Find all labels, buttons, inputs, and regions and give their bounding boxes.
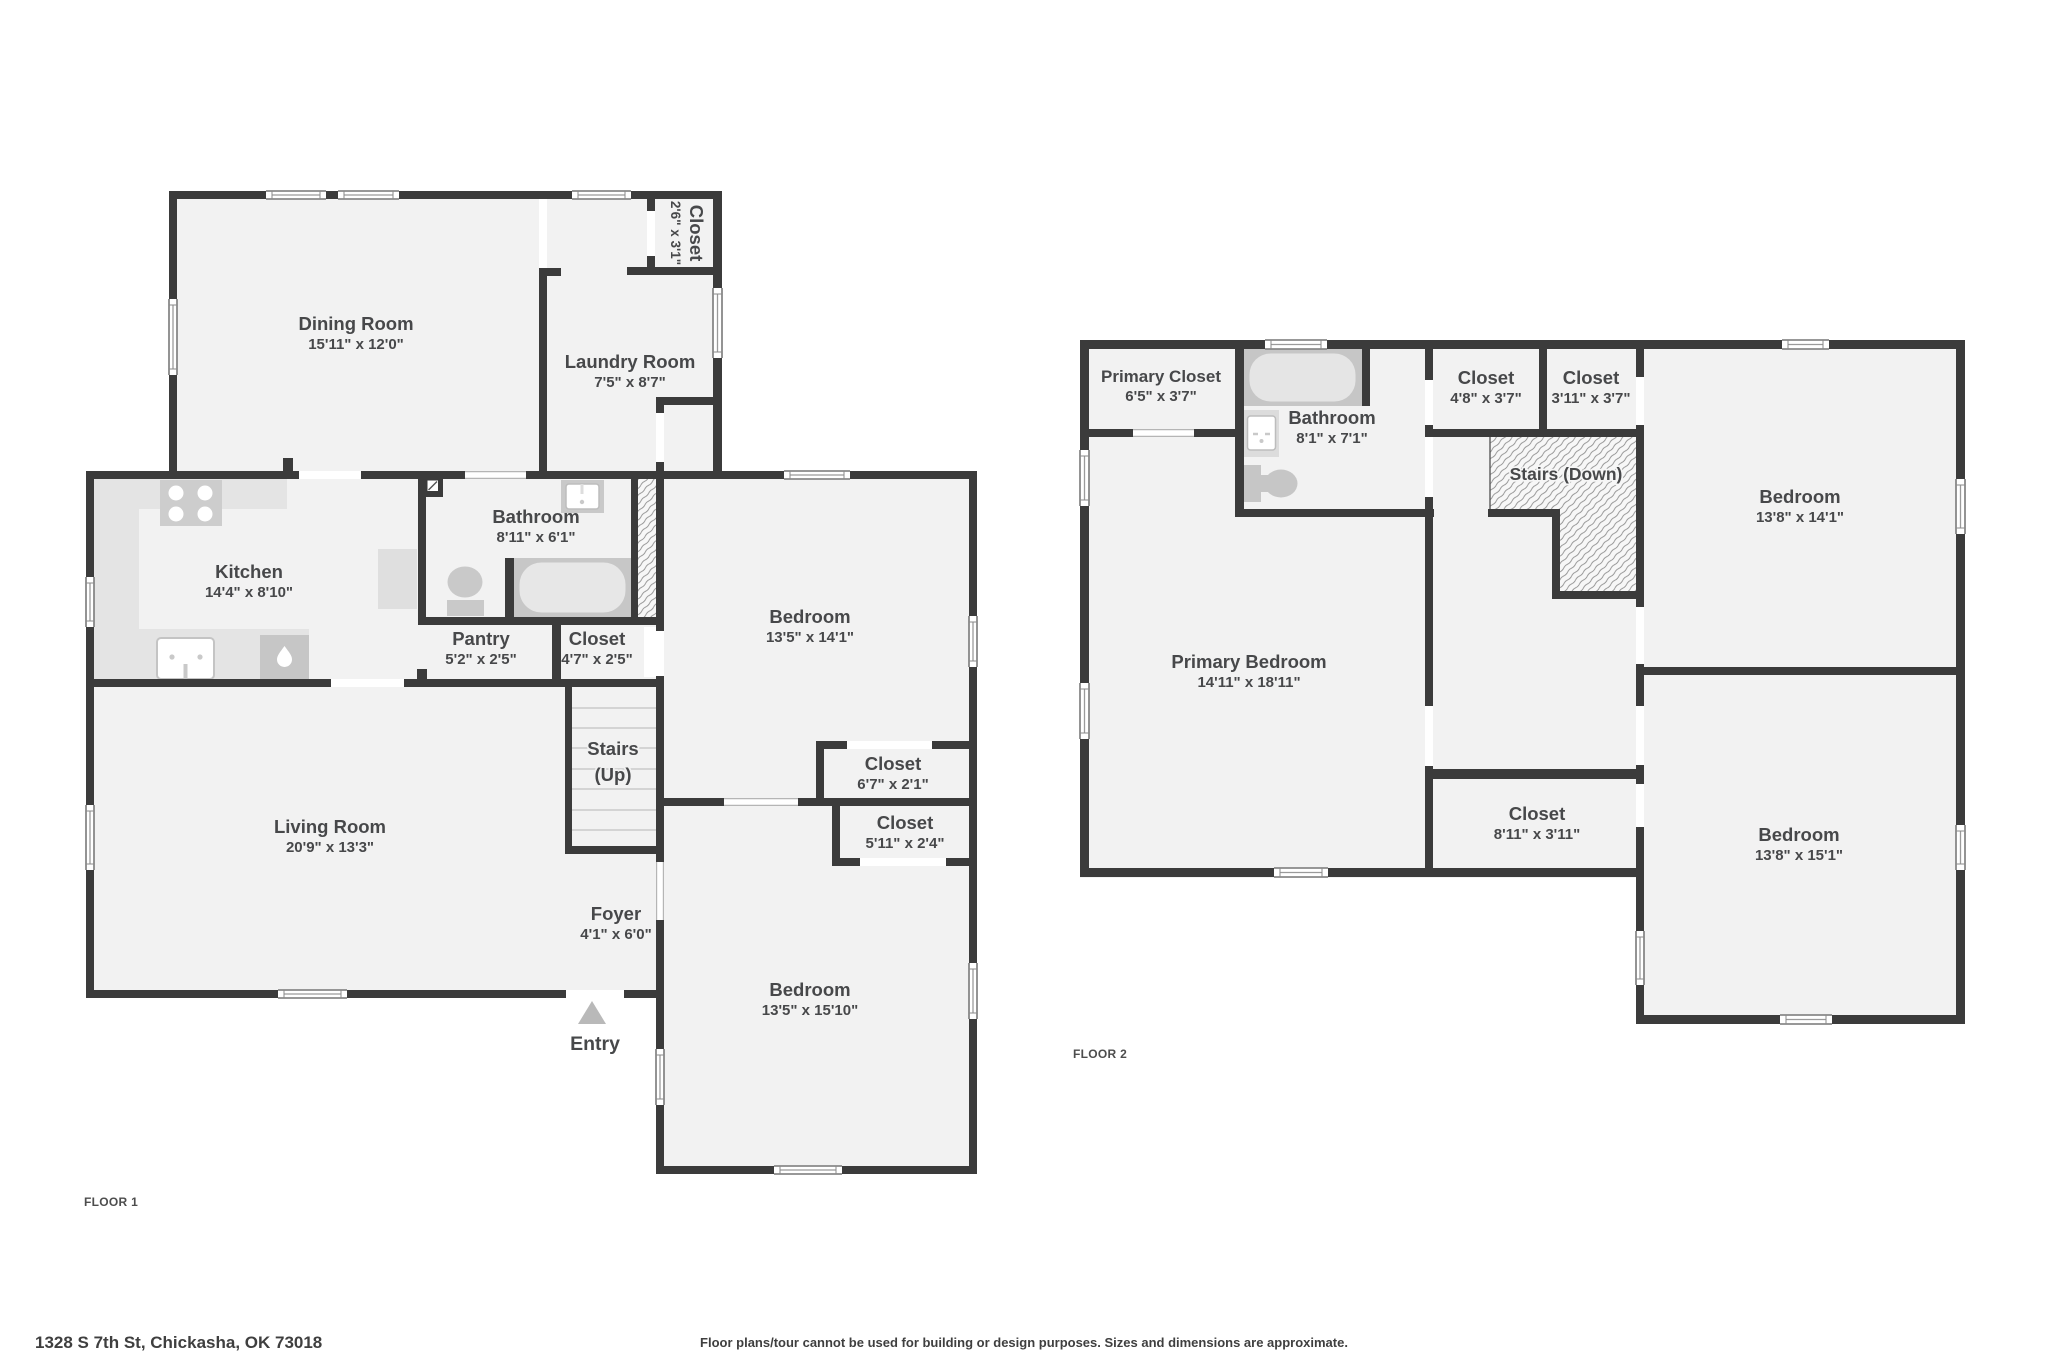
svg-text:1328 S 7th St, Chickasha, OK 7: 1328 S 7th St, Chickasha, OK 73018 [35, 1333, 322, 1352]
svg-text:14'11" x 18'11": 14'11" x 18'11" [1197, 674, 1300, 691]
svg-text:Stairs: Stairs [587, 738, 638, 759]
svg-text:15'11" x 12'0": 15'11" x 12'0" [308, 336, 404, 353]
svg-text:Stairs (Down): Stairs (Down) [1510, 464, 1623, 484]
svg-text:Bedroom: Bedroom [1758, 824, 1839, 845]
svg-text:3'11" x 3'7": 3'11" x 3'7" [1552, 390, 1631, 407]
svg-text:5'2" x 2'5": 5'2" x 2'5" [445, 651, 516, 668]
svg-text:Closet: Closet [686, 205, 707, 262]
svg-text:Closet: Closet [1509, 803, 1566, 824]
svg-text:5'11" x 2'4": 5'11" x 2'4" [866, 835, 945, 852]
svg-text:Closet: Closet [569, 628, 626, 649]
svg-text:6'7" x 2'1": 6'7" x 2'1" [857, 776, 928, 793]
svg-text:6'5" x 3'7": 6'5" x 3'7" [1125, 388, 1196, 405]
svg-text:Laundry Room: Laundry Room [565, 351, 696, 372]
svg-text:14'4" x 8'10": 14'4" x 8'10" [205, 584, 293, 601]
svg-text:Entry: Entry [570, 1033, 620, 1055]
svg-text:13'5" x 14'1": 13'5" x 14'1" [766, 629, 854, 646]
svg-text:13'8" x 14'1": 13'8" x 14'1" [1756, 509, 1844, 526]
svg-text:Bedroom: Bedroom [769, 979, 850, 1000]
svg-text:4'7" x 2'5": 4'7" x 2'5" [561, 651, 632, 668]
svg-text:Closet: Closet [1458, 367, 1515, 388]
svg-text:8'11" x 3'11": 8'11" x 3'11" [1494, 826, 1580, 843]
svg-text:7'5" x 8'7": 7'5" x 8'7" [594, 374, 665, 391]
svg-text:Dining Room: Dining Room [298, 313, 413, 334]
svg-text:Foyer: Foyer [591, 903, 641, 924]
svg-text:8'1" x 7'1": 8'1" x 7'1" [1296, 430, 1367, 447]
svg-text:Bathroom: Bathroom [492, 506, 579, 527]
svg-text:FLOOR 1: FLOOR 1 [84, 1195, 138, 1209]
svg-text:8'11" x 6'1": 8'11" x 6'1" [497, 529, 576, 546]
svg-text:4'8" x 3'7": 4'8" x 3'7" [1450, 390, 1521, 407]
svg-text:13'8" x 15'1": 13'8" x 15'1" [1755, 847, 1843, 864]
svg-text:FLOOR 2: FLOOR 2 [1073, 1047, 1127, 1061]
svg-text:4'1" x 6'0": 4'1" x 6'0" [580, 926, 651, 943]
svg-text:Bedroom: Bedroom [1759, 486, 1840, 507]
svg-text:Pantry: Pantry [452, 628, 510, 649]
svg-text:Bedroom: Bedroom [769, 606, 850, 627]
svg-text:13'5" x 15'10": 13'5" x 15'10" [762, 1002, 858, 1019]
svg-text:Bathroom: Bathroom [1288, 407, 1375, 428]
svg-text:Primary Closet: Primary Closet [1101, 367, 1221, 386]
svg-text:Floor plans/tour cannot be use: Floor plans/tour cannot be used for buil… [700, 1335, 1348, 1350]
svg-text:(Up): (Up) [595, 764, 632, 785]
svg-text:Closet: Closet [865, 753, 922, 774]
svg-text:2'6" x 3'1": 2'6" x 3'1" [668, 201, 683, 265]
svg-text:Closet: Closet [1563, 367, 1620, 388]
svg-text:Closet: Closet [877, 812, 934, 833]
svg-text:20'9" x 13'3": 20'9" x 13'3" [286, 839, 374, 856]
svg-text:Primary Bedroom: Primary Bedroom [1171, 651, 1326, 672]
svg-text:Kitchen: Kitchen [215, 561, 283, 582]
svg-text:Living Room: Living Room [274, 816, 386, 837]
